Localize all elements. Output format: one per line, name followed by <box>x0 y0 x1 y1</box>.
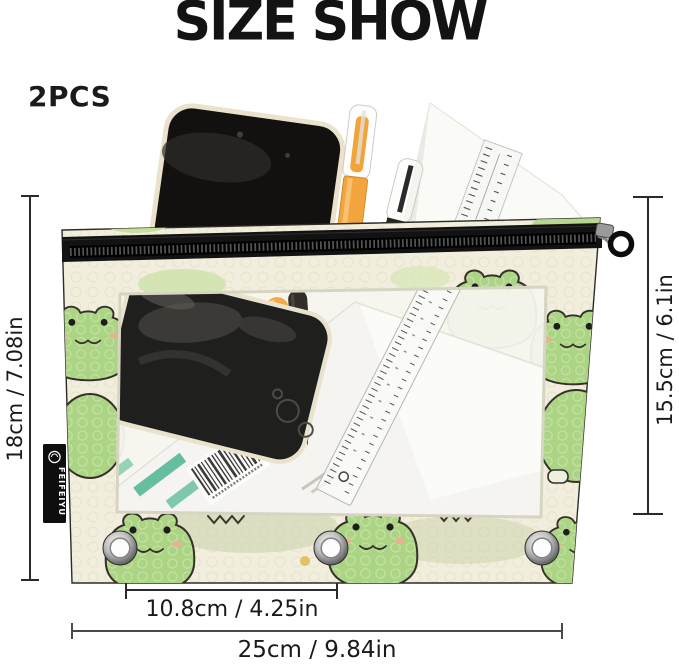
yellow-dot <box>300 556 310 566</box>
frog-body <box>56 394 124 478</box>
brand-tag: FEIFEIYU <box>43 444 67 523</box>
width-dimension-line <box>72 630 562 632</box>
frog-body <box>538 390 614 482</box>
width-dimension-label: 25cm / 9.84in <box>177 637 457 663</box>
dimension-cap <box>633 196 663 198</box>
brand-tag-text: FEIFEIYU <box>57 467 67 516</box>
grommet <box>314 531 348 565</box>
grommet <box>525 531 559 565</box>
page-title: SIZE SHOW <box>150 0 510 48</box>
dimension-cap <box>71 623 73 639</box>
height-dimension-label: 18cm / 7.08in <box>3 316 27 461</box>
window-height-dimension-line <box>647 197 649 515</box>
lily-pad <box>390 266 450 290</box>
height-dimension-line <box>29 196 31 581</box>
dimension-cap <box>633 513 663 515</box>
frog-foot <box>548 470 568 483</box>
dimension-cap <box>21 195 39 197</box>
grommet <box>103 531 137 565</box>
dimension-cap <box>21 579 39 581</box>
dimension-cap <box>561 623 563 639</box>
window-height-dimension-label: 15.5cm / 6.1in <box>653 274 677 426</box>
frog-footprint <box>100 198 136 205</box>
zipper-ring <box>611 234 632 255</box>
quantity-label: 2PCS <box>28 80 111 113</box>
grommet-spacing-dimension-label: 10.8cm / 4.25in <box>111 597 353 622</box>
grommet-spacing-dimension-line <box>125 589 338 591</box>
